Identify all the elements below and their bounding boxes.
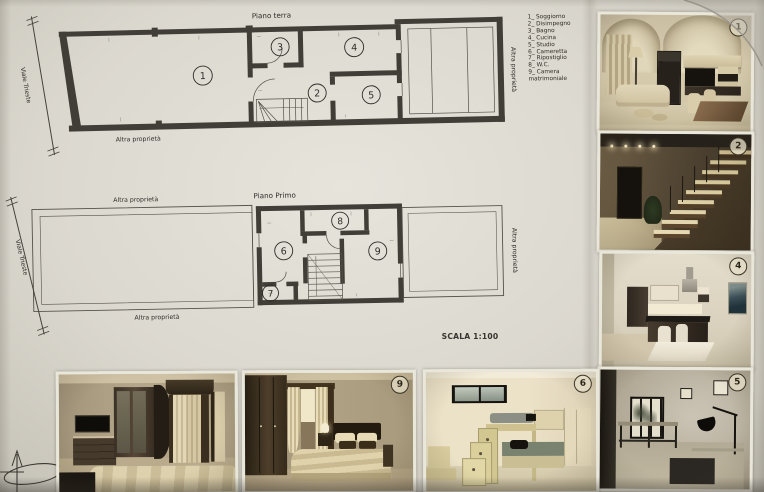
terrace-outline bbox=[402, 206, 504, 298]
room-marker-bagno: 3 bbox=[271, 38, 289, 56]
svg-text:8: 8 bbox=[337, 217, 343, 227]
dimension-ticks-ground bbox=[109, 32, 381, 123]
wardrobe-handle bbox=[274, 425, 276, 427]
tv-screen bbox=[75, 415, 110, 432]
render-photo-scala: 2 bbox=[597, 130, 755, 253]
render-photo-cucina: 4 bbox=[599, 251, 755, 371]
spotlight bbox=[624, 145, 627, 148]
step bbox=[694, 180, 730, 184]
pillow bbox=[510, 440, 528, 449]
valance bbox=[166, 380, 214, 395]
bed bbox=[89, 466, 235, 492]
photo-badge: 9 bbox=[391, 376, 409, 394]
studio-scene bbox=[600, 369, 751, 489]
scale-label: SCALA 1:100 bbox=[428, 332, 512, 341]
dining-table bbox=[693, 101, 748, 121]
accent-pillow bbox=[359, 441, 376, 449]
render-photo-cameretta: 6 bbox=[423, 369, 599, 492]
street-label-ground: Viale Trieste bbox=[19, 67, 32, 104]
room-marker-cucina: 4 bbox=[344, 37, 363, 56]
step bbox=[686, 190, 722, 194]
wardrobe-mirror bbox=[133, 391, 146, 453]
floor bbox=[602, 334, 654, 361]
photo-badge: 5 bbox=[728, 373, 746, 391]
step bbox=[654, 230, 690, 234]
legend-item: 9_ Camera matrimoniale bbox=[528, 69, 596, 84]
drawer-step bbox=[462, 458, 486, 486]
wardrobe-mirror bbox=[117, 391, 130, 453]
svg-text:7: 7 bbox=[268, 289, 274, 299]
wardrobe bbox=[245, 375, 287, 475]
workbench-leg bbox=[648, 426, 650, 448]
railing-rod bbox=[670, 186, 671, 212]
room-marker-wc: 8 bbox=[331, 212, 348, 229]
artwork bbox=[728, 282, 747, 314]
backsplash bbox=[648, 304, 702, 314]
ground-title: Piano terra bbox=[252, 11, 291, 21]
street-label-first: Viale Trieste bbox=[14, 239, 29, 276]
desk-top bbox=[692, 448, 744, 451]
lower-bed-base bbox=[502, 456, 564, 468]
room-marker-disimpegno: 2 bbox=[308, 84, 326, 102]
railing-rod bbox=[682, 176, 683, 202]
ground-bottom-label: Altra proprietà bbox=[116, 135, 161, 144]
render-photo-camera-matrimoniale: 9 bbox=[242, 370, 416, 492]
wardrobe-door-line bbox=[576, 410, 577, 464]
workbench-leg bbox=[620, 426, 622, 448]
high-window bbox=[713, 380, 728, 395]
accent-pillow bbox=[339, 441, 356, 449]
high-window-pane bbox=[481, 387, 504, 401]
photo-badge: 2 bbox=[729, 137, 747, 155]
window bbox=[301, 389, 315, 449]
render-photo-studio: 5 bbox=[597, 366, 754, 492]
upper-cabinet bbox=[698, 287, 709, 302]
wall-dark-edge bbox=[600, 369, 617, 488]
room-marker-soggiorno: 1 bbox=[193, 66, 212, 85]
coffee-table bbox=[652, 114, 668, 121]
first-stairs bbox=[308, 254, 343, 301]
svg-text:1: 1 bbox=[200, 71, 206, 82]
room-marker-camera-matrimoniale: 9 bbox=[369, 242, 387, 260]
svg-text:4: 4 bbox=[351, 43, 357, 54]
table bbox=[647, 342, 714, 361]
svg-text:2: 2 bbox=[314, 88, 320, 99]
cucina-scene bbox=[602, 254, 752, 368]
desk-shelf bbox=[426, 468, 456, 480]
bed-foot-band bbox=[291, 473, 391, 481]
spotlight bbox=[638, 145, 641, 148]
photo-badge: 4 bbox=[729, 257, 747, 275]
window bbox=[211, 392, 225, 462]
first-title: Piano Primo bbox=[253, 191, 296, 201]
wardrobe-overhead bbox=[534, 410, 564, 430]
first-bottom-label: Altra proprietà bbox=[134, 313, 179, 322]
dresser bbox=[383, 445, 393, 467]
step bbox=[678, 200, 714, 204]
upper-cabinet bbox=[650, 285, 679, 301]
railing-rod bbox=[694, 166, 695, 192]
nightstand bbox=[318, 433, 332, 446]
svg-text:9: 9 bbox=[375, 246, 381, 257]
table-lamp bbox=[321, 423, 329, 432]
drawer-knob bbox=[472, 468, 475, 471]
spotlight bbox=[610, 145, 613, 148]
other-property-outline bbox=[32, 205, 254, 311]
street-line-ground bbox=[26, 16, 59, 157]
bunk-item bbox=[526, 414, 536, 421]
room-legend: 1_ Soggiorno 2_ Disimpegno 3_ Bagno 4_ C… bbox=[528, 14, 597, 84]
camera-a-scene bbox=[59, 374, 236, 492]
ceiling bbox=[426, 372, 596, 379]
railing-rod bbox=[718, 146, 719, 172]
wardrobe-handle bbox=[260, 425, 262, 427]
step bbox=[702, 170, 738, 174]
step bbox=[662, 220, 698, 224]
workbench-leg bbox=[675, 426, 677, 448]
plant bbox=[644, 196, 662, 224]
room-marker-ripostiglio: 7 bbox=[262, 285, 278, 301]
ground-floor-plan: Piano terra Viale Trieste Altra propriet… bbox=[0, 0, 547, 176]
cameretta-scene bbox=[426, 372, 596, 492]
paper-curl bbox=[644, 0, 764, 70]
svg-text:5: 5 bbox=[368, 90, 374, 101]
drawer-knob bbox=[486, 438, 489, 441]
step bbox=[710, 160, 746, 164]
range-hood bbox=[682, 279, 697, 292]
step bbox=[670, 210, 706, 214]
curtain-sheer bbox=[173, 395, 201, 463]
first-right-label: Altra proprietà bbox=[510, 228, 519, 273]
render-photo-camera-a bbox=[56, 371, 239, 492]
plan-sheet: Piano terra Viale Trieste Altra propriet… bbox=[0, 0, 764, 492]
room-marker-studio: 5 bbox=[362, 86, 380, 104]
cabinet bbox=[670, 458, 715, 484]
door bbox=[617, 167, 642, 219]
railing-rod bbox=[706, 156, 707, 182]
sofa bbox=[616, 84, 670, 106]
first-top-label: Altra proprietà bbox=[113, 195, 158, 204]
room-marker-cameretta: 6 bbox=[275, 242, 293, 260]
bench bbox=[59, 472, 95, 492]
spotlight bbox=[652, 145, 655, 148]
high-window bbox=[680, 388, 692, 399]
svg-text:6: 6 bbox=[281, 246, 287, 257]
dresser bbox=[73, 438, 116, 465]
ground-stairs bbox=[256, 98, 308, 122]
high-window-pane bbox=[455, 387, 479, 401]
photo-badge: 6 bbox=[574, 375, 592, 393]
ground-walls bbox=[59, 17, 505, 132]
scala-scene bbox=[600, 133, 752, 250]
tv-screen bbox=[685, 68, 715, 86]
drawer-knob bbox=[479, 452, 482, 455]
first-floor-plan: Altra proprietà Piano Primo Viale Triest… bbox=[0, 178, 547, 353]
curtain-sheer bbox=[288, 387, 300, 453]
svg-text:3: 3 bbox=[277, 42, 283, 53]
ground-right-label: Altra proprietà bbox=[509, 47, 518, 92]
camera-matrimoniale-scene bbox=[245, 373, 413, 492]
wardrobe bbox=[564, 408, 591, 466]
